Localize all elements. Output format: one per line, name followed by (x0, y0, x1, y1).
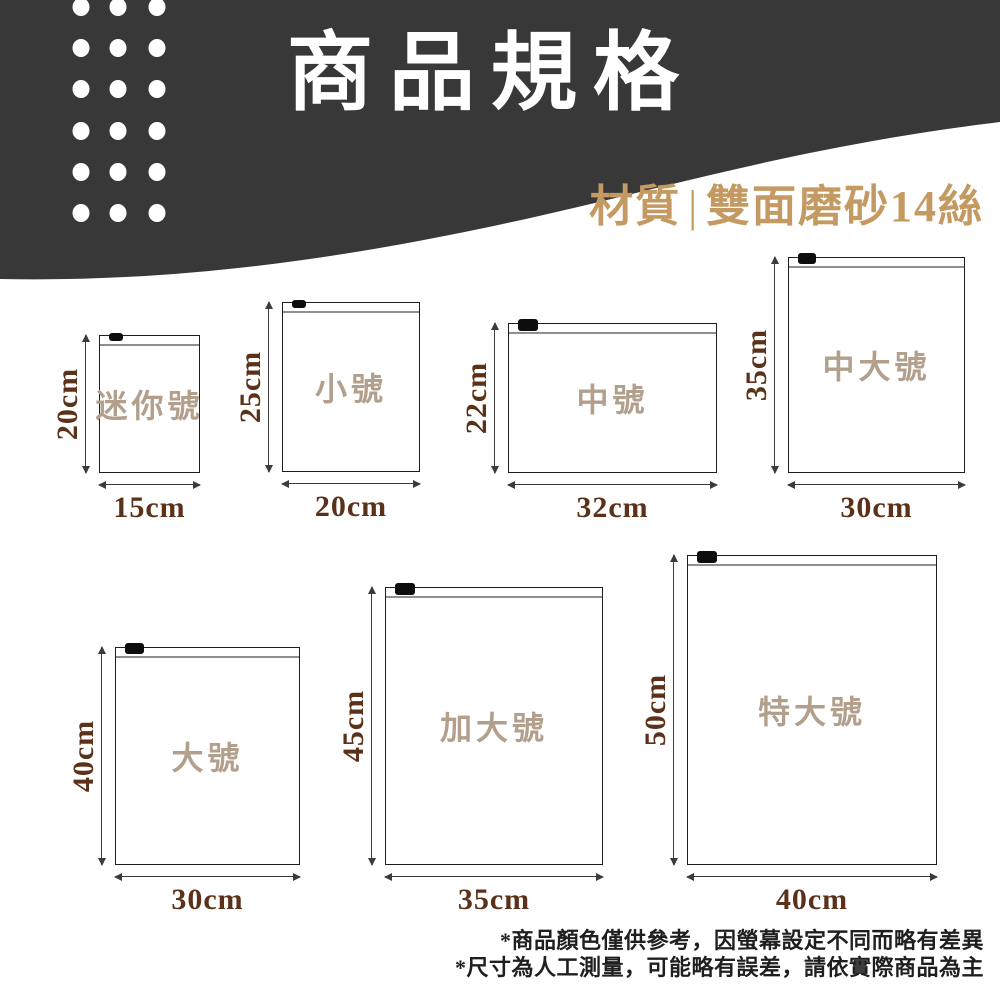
width-dimension-label: 20cm (315, 490, 387, 524)
zipper-track (100, 336, 199, 346)
bag-size-group: 小號 25cm 20cm (0, 0, 1000, 1000)
bag-size-group: 大號 40cm 30cm (0, 0, 1000, 1000)
width-dimension-label: 30cm (171, 883, 243, 917)
bags-layer: 迷你號 20cm 15cm 小號 25cm 20cm 中號 22cm 32cm (0, 0, 1000, 1000)
width-dimension-arrow (687, 876, 937, 877)
height-dimension-arrow (101, 647, 102, 865)
bag-size-name: 加大號 (440, 703, 548, 749)
zipper-slider-icon (518, 319, 538, 331)
width-dimension-label: 35cm (458, 883, 530, 917)
zipper-slider-icon (292, 300, 306, 308)
bag-size-name: 迷你號 (95, 381, 203, 427)
height-dimension-label: 45cm (337, 690, 371, 762)
bag-size-group: 中大號 35cm 30cm (0, 0, 1000, 1000)
height-dimension-arrow (85, 335, 86, 473)
bag-size-name: 小號 (315, 364, 387, 410)
width-dimension-arrow (99, 484, 200, 485)
zipper-track (509, 324, 716, 334)
zipper-bag: 迷你號 (99, 335, 200, 473)
zipper-bag: 大號 (115, 647, 300, 865)
zipper-track (116, 648, 299, 658)
width-dimension-arrow (508, 484, 717, 485)
width-dimension-label: 15cm (113, 491, 185, 525)
bag-size-group: 迷你號 20cm 15cm (0, 0, 1000, 1000)
zipper-bag: 中號 (508, 323, 717, 473)
height-dimension-arrow (494, 323, 495, 473)
bag-size-group: 中號 22cm 32cm (0, 0, 1000, 1000)
zipper-track (688, 556, 936, 566)
height-dimension-arrow (371, 587, 372, 865)
height-dimension-label: 25cm (234, 351, 268, 423)
zipper-slider-icon (697, 551, 717, 563)
zipper-track (283, 303, 419, 313)
width-dimension-arrow (788, 484, 965, 485)
zipper-bag: 加大號 (385, 587, 603, 865)
width-dimension-label: 32cm (576, 491, 648, 525)
footnote-measure-disclaimer: *尺寸為人工測量，可能略有誤差，請依實際商品為主 (455, 955, 984, 982)
width-dimension-arrow (385, 876, 603, 877)
footnote-color-disclaimer: *商品顏色僅供參考，因螢幕設定不同而略有差異 (455, 928, 984, 955)
footnotes: *商品顏色僅供參考，因螢幕設定不同而略有差異 *尺寸為人工測量，可能略有誤差，請… (455, 928, 984, 982)
bag-size-group: 特大號 50cm 40cm (0, 0, 1000, 1000)
bag-size-name: 中號 (576, 375, 648, 421)
zipper-slider-icon (125, 643, 144, 654)
zipper-bag: 小號 (282, 302, 420, 472)
zipper-bag: 特大號 (687, 555, 937, 865)
product-spec-page: 商品規格 材質|雙面磨砂14絲 迷你號 20cm 15cm 小號 25cm 20… (0, 0, 1000, 1000)
height-dimension-arrow (268, 302, 269, 472)
height-dimension-label: 35cm (740, 329, 774, 401)
bag-size-name: 中大號 (822, 342, 930, 388)
bag-size-name: 大號 (171, 733, 243, 779)
width-dimension-label: 30cm (840, 491, 912, 525)
height-dimension-label: 40cm (67, 720, 101, 792)
height-dimension-arrow (673, 555, 674, 865)
zipper-slider-icon (109, 333, 123, 341)
zipper-track (386, 588, 602, 598)
width-dimension-arrow (282, 483, 420, 484)
height-dimension-label: 20cm (51, 368, 85, 440)
height-dimension-arrow (774, 257, 775, 473)
height-dimension-label: 50cm (639, 674, 673, 746)
zipper-bag: 中大號 (788, 257, 965, 473)
height-dimension-label: 22cm (460, 362, 494, 434)
bag-size-name: 特大號 (758, 687, 866, 733)
bag-size-group: 加大號 45cm 35cm (0, 0, 1000, 1000)
zipper-slider-icon (798, 253, 816, 264)
zipper-track (789, 258, 964, 268)
width-dimension-arrow (115, 876, 300, 877)
zipper-slider-icon (395, 583, 415, 595)
width-dimension-label: 40cm (776, 883, 848, 917)
